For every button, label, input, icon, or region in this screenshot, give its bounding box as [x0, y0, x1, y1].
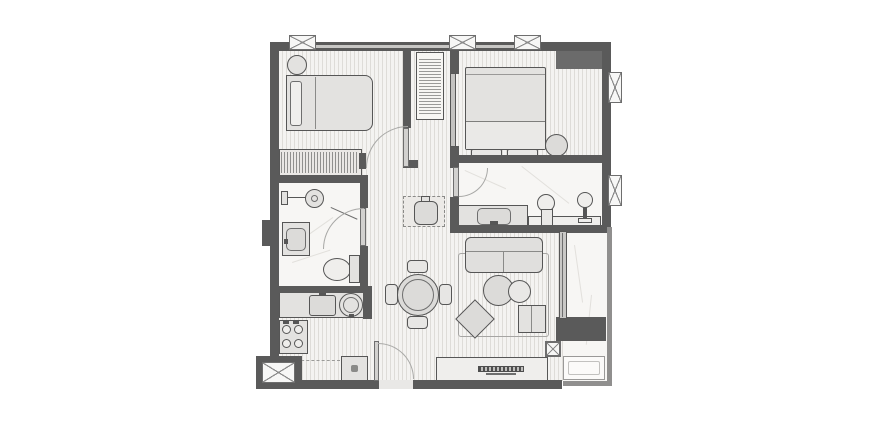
- hall-closet-hatch: [419, 57, 441, 114]
- burner-1: [282, 325, 291, 334]
- wall-bedroom2-stub-top: [450, 51, 459, 74]
- wall-bottom-left: [298, 380, 379, 389]
- window-glazing-strip: [316, 45, 450, 48]
- wall-counter-stub: [363, 286, 372, 319]
- wall-bottom-right: [413, 380, 562, 389]
- dining-chair-bottom: [407, 316, 428, 329]
- appliance-dot: [351, 365, 358, 372]
- round-basin-inner: [343, 297, 359, 313]
- bed2-head-line: [466, 74, 545, 75]
- sofa-seat-divider: [503, 252, 504, 272]
- planter: [545, 134, 568, 157]
- window-box-right-2: [608, 175, 622, 206]
- wall-bath1-right-upper: [360, 183, 368, 208]
- glass-wall-balcony: [559, 231, 567, 319]
- stove-knobs: [293, 321, 299, 324]
- wall-ensuite-top: [450, 155, 611, 163]
- kitchen-sink: [309, 295, 336, 316]
- entry-threshold: [379, 380, 413, 389]
- shower-head-center: [311, 195, 318, 202]
- wall-bedroom1-hall: [403, 51, 411, 128]
- vent-box-top-1: [289, 35, 316, 50]
- bath1-faucet: [284, 239, 288, 244]
- tv-base: [486, 373, 516, 375]
- bath1-toilet-bowl: [323, 258, 351, 281]
- built-in-wardrobe: [556, 51, 602, 69]
- window-box-right-1: [608, 72, 622, 103]
- balcony-planter-inner: [568, 361, 600, 375]
- coffee-table-small: [508, 280, 531, 303]
- burner-2: [294, 325, 303, 334]
- bed2-duvet-line: [466, 121, 545, 122]
- washing-machine: [414, 201, 438, 225]
- dining-chair-top: [407, 260, 428, 273]
- pedestal-basin-bowl: [577, 192, 593, 208]
- round-basin-drain: [349, 314, 354, 317]
- cabinet-dashed-line: [296, 360, 340, 361]
- vent-box-top-3: [514, 35, 541, 50]
- wall-left: [270, 42, 279, 360]
- sofa: [465, 237, 543, 273]
- balcony-parapet-bottom: [563, 381, 612, 386]
- sliding-panel-bedroom2: [450, 73, 456, 147]
- bath1-sink: [286, 228, 306, 251]
- wall-left-pier: [262, 220, 270, 246]
- pedestal-basin-base: [578, 218, 592, 223]
- shower-wall-mount: [281, 191, 288, 205]
- stove-knobs: [283, 321, 289, 324]
- shaft-x-symbol: [262, 362, 295, 383]
- side-table: [518, 305, 546, 333]
- tv-screen: [478, 366, 524, 372]
- vent-box-top-2: [449, 35, 476, 50]
- wall-bath1-bottom: [270, 286, 368, 293]
- dresser-handle: [359, 153, 366, 169]
- window-glazing-strip: [476, 45, 517, 48]
- balcony-parapet-right: [607, 227, 612, 386]
- burner-3: [282, 339, 291, 348]
- wall-ensuite-bottom: [450, 225, 611, 233]
- column-box: [545, 341, 561, 357]
- dining-chair-right: [439, 284, 452, 305]
- glass-wall-center-line: [562, 233, 563, 317]
- dresser-hatch: [281, 152, 357, 173]
- pillow: [290, 81, 302, 126]
- wall-balcony-pier: [556, 317, 606, 341]
- side-table-divider: [531, 306, 532, 332]
- bath1-toilet-tank: [349, 255, 360, 283]
- sofa-back-line: [466, 251, 542, 252]
- ensuite-toilet-base: [541, 209, 553, 226]
- stool: [287, 55, 307, 75]
- bed1-duvet-line: [315, 77, 316, 129]
- wall-bath1-top: [270, 175, 368, 183]
- bed2-foot-band: [466, 122, 545, 149]
- dining-table-rim: [402, 279, 434, 311]
- burner-4: [294, 339, 303, 348]
- floor-plan-image: [0, 0, 890, 440]
